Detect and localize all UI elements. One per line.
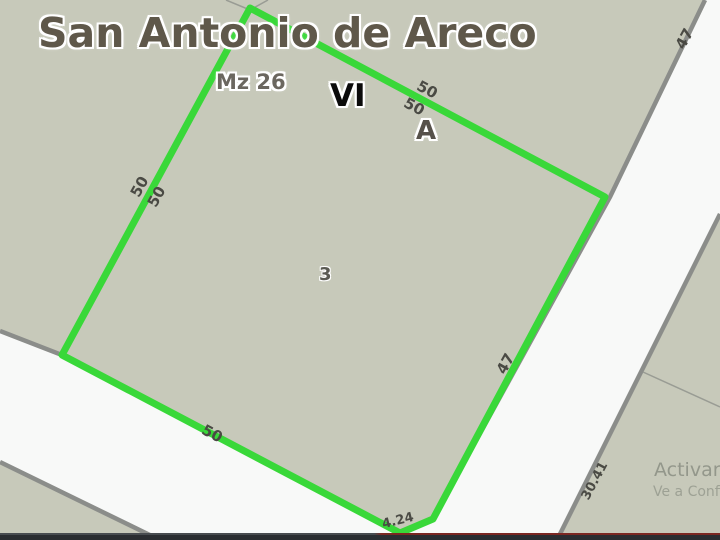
block-label: Mz 26 [216, 72, 286, 93]
map-viewport: San Antonio de Areco Mz 26 VI A 3 50 50 … [0, 0, 720, 540]
parcel-number-label: 3 [319, 266, 332, 284]
windows-activation-watermark-line1: Activar [654, 461, 720, 480]
windows-activation-watermark-line2: Ve a Confi [653, 485, 720, 499]
city-title: San Antonio de Areco [38, 13, 537, 54]
bottom-window-edge [0, 533, 720, 540]
zone-label: A [416, 118, 436, 144]
section-label: VI [330, 81, 366, 112]
